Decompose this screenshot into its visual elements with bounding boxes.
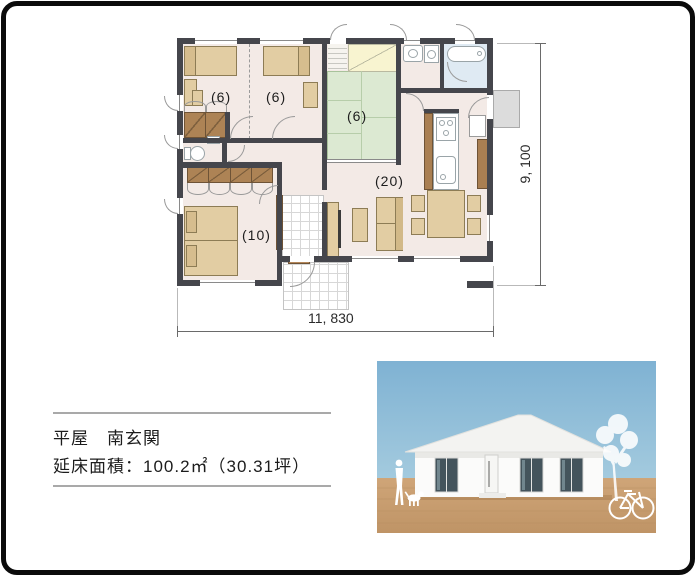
closet-master-bedroom	[187, 166, 273, 183]
closet-cell	[206, 113, 226, 137]
folding-door-arc	[187, 183, 209, 195]
closet-doors-master	[187, 183, 273, 195]
closet-cell	[252, 167, 272, 182]
window-living-south-2	[414, 256, 460, 262]
pillow-master-2	[186, 245, 197, 267]
pillow-master-1	[186, 211, 197, 233]
dimension-height-label: 9, 100	[517, 142, 533, 186]
dim-guide	[497, 43, 537, 44]
washbasin-bowl	[408, 49, 418, 58]
dining-chair	[467, 218, 481, 235]
sofa-cushion-line	[377, 223, 395, 224]
caption-rule-top	[53, 412, 331, 414]
dining-chair	[411, 218, 425, 235]
wall-hall-south	[177, 162, 282, 168]
burner	[439, 120, 445, 126]
bathtub-drain	[477, 51, 482, 56]
label-bedroom2: (6)	[266, 89, 286, 105]
back-entry-steps	[328, 44, 347, 70]
door-arc-back-north	[330, 24, 347, 40]
window-arc-west-3	[164, 199, 178, 214]
wall-genkan-west	[277, 162, 282, 286]
kitchen-sink	[436, 156, 456, 184]
window-dining-east	[487, 215, 493, 241]
wall-genkan-east	[322, 202, 327, 256]
tatami-seam	[327, 100, 361, 101]
kitchen-counter-cap	[424, 109, 459, 113]
tv-screen	[338, 210, 341, 248]
dimension-width-label: 11, 830	[308, 310, 354, 326]
label-tatami: (6)	[347, 108, 367, 124]
dining-chair	[411, 195, 425, 212]
sofa-back	[395, 198, 403, 250]
flyer-page: (6) (6) (6) (10) (20) 11, 830 9, 100 平屋 …	[0, 0, 696, 576]
closet-cell	[209, 167, 230, 182]
storage-closet-yellow	[348, 44, 398, 72]
bed-split-line	[185, 240, 237, 241]
genkan-tile-floor	[282, 195, 324, 258]
label-ldk: (20)	[375, 173, 404, 189]
closet-cell	[188, 167, 209, 182]
washing-machine-drum	[427, 50, 436, 59]
bed-pillow-bedroom1	[184, 46, 196, 76]
coffee-table	[352, 208, 368, 242]
window-bedroom2-north	[260, 38, 303, 44]
dim-tick	[493, 326, 494, 337]
wall-tatami-east	[396, 44, 401, 165]
tatami-seam	[327, 133, 361, 134]
folding-door-arc	[184, 101, 206, 112]
dimension-line-width	[177, 331, 494, 332]
eave-shadow	[415, 452, 603, 458]
back-porch-east	[493, 90, 520, 128]
desk-bedroom2	[303, 82, 318, 108]
burner	[447, 120, 453, 126]
wall-washroom-south	[401, 88, 487, 93]
window-arc-washroom	[390, 24, 407, 40]
entrance-step	[479, 493, 506, 498]
closet-cell	[231, 167, 252, 182]
folding-door-arc	[209, 183, 231, 195]
wall-wash-bath	[440, 44, 444, 93]
folding-door-arc	[230, 183, 252, 195]
window-arc-west-1	[164, 96, 178, 111]
bed-pillow-bedroom2	[298, 46, 310, 76]
dim-guide	[497, 285, 537, 286]
caption-rule-bottom	[53, 485, 331, 487]
window-master-south	[200, 280, 255, 286]
exterior-rendering-photo	[377, 361, 656, 533]
dim-tick	[535, 43, 546, 44]
dim-tick	[177, 326, 178, 337]
sink-drain	[440, 174, 446, 180]
window-living-south-1	[352, 256, 398, 262]
closet-bedroom1	[184, 112, 227, 138]
dim-tick	[535, 285, 546, 286]
dining-chair	[467, 195, 481, 212]
entrance-door	[485, 455, 498, 493]
window-arc-bath	[456, 24, 475, 40]
tatami-sliding-doors	[327, 159, 396, 163]
window-arc-west-2	[164, 135, 178, 149]
window-bedroom1-north	[195, 38, 237, 44]
caption-title: 平屋 南玄関	[53, 424, 161, 449]
burner	[443, 130, 449, 136]
refrigerator-space	[469, 115, 486, 137]
terrace-step	[467, 281, 494, 288]
toilet-bowl	[190, 146, 205, 161]
caption-area: 延床面積：100.2㎡（30.31坪）	[53, 452, 310, 477]
wall-corridor-east	[322, 44, 327, 190]
dimension-line-height	[540, 43, 541, 285]
label-master-bedroom: (10)	[242, 227, 271, 243]
dining-table	[427, 190, 465, 238]
closet-cell	[185, 113, 206, 137]
label-bedroom1: (6)	[211, 89, 231, 105]
kitchen-counter-back	[424, 113, 433, 190]
wall-toilet-east	[222, 143, 227, 165]
